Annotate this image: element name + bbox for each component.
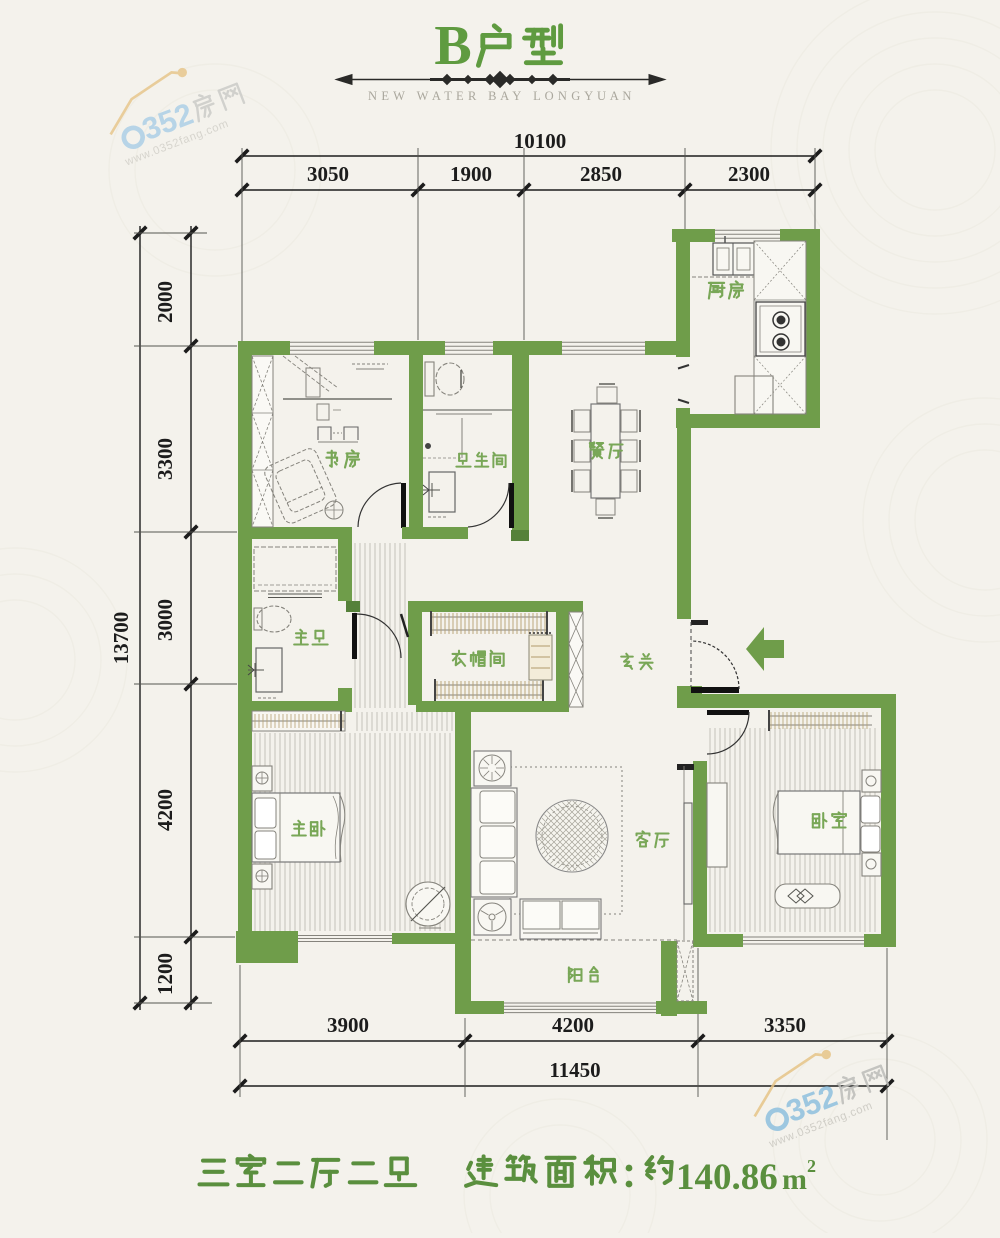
svg-text:13700: 13700 xyxy=(109,612,133,665)
svg-text:3900: 3900 xyxy=(327,1013,369,1037)
svg-text:4200: 4200 xyxy=(552,1013,594,1037)
svg-text:4200: 4200 xyxy=(153,789,177,831)
svg-text:11450: 11450 xyxy=(549,1058,600,1082)
svg-text:B: B xyxy=(434,15,471,77)
svg-text:1200: 1200 xyxy=(153,953,177,995)
svg-text:2850: 2850 xyxy=(580,162,622,186)
svg-text:m: m xyxy=(782,1163,807,1196)
svg-text:3000: 3000 xyxy=(153,599,177,641)
svg-text:N E W W A T E R B A Y L: N E W W A T E R B A Y L O N G Y U A N xyxy=(368,89,632,103)
svg-text:1900: 1900 xyxy=(450,162,492,186)
svg-text:10100: 10100 xyxy=(514,129,567,153)
svg-text:3350: 3350 xyxy=(764,1013,806,1037)
svg-text:2: 2 xyxy=(807,1156,816,1176)
svg-text:140.86: 140.86 xyxy=(676,1157,778,1198)
svg-text:2000: 2000 xyxy=(153,281,177,323)
svg-text:2300: 2300 xyxy=(728,162,770,186)
svg-text:3050: 3050 xyxy=(307,162,349,186)
svg-text:3300: 3300 xyxy=(153,438,177,480)
